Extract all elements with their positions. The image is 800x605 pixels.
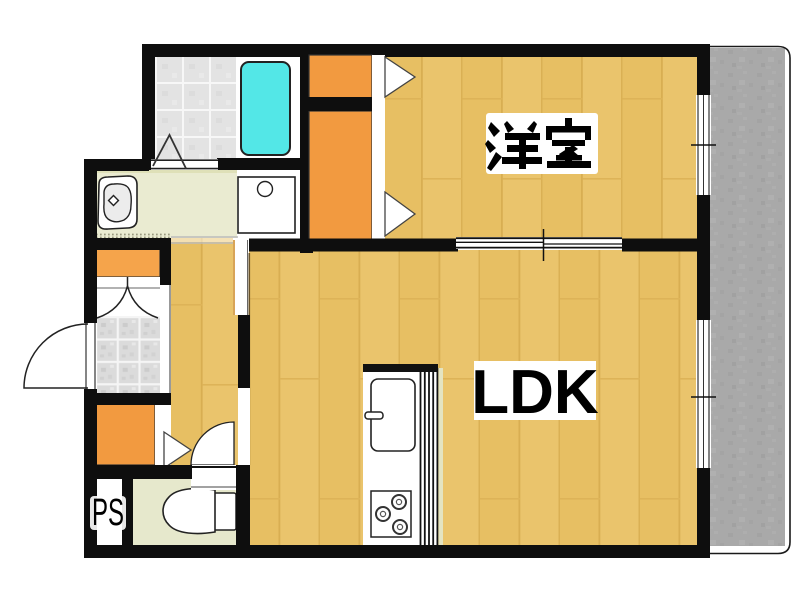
svg-text:LDK: LDK [471, 358, 599, 427]
svg-text:PS: PS [92, 492, 124, 534]
